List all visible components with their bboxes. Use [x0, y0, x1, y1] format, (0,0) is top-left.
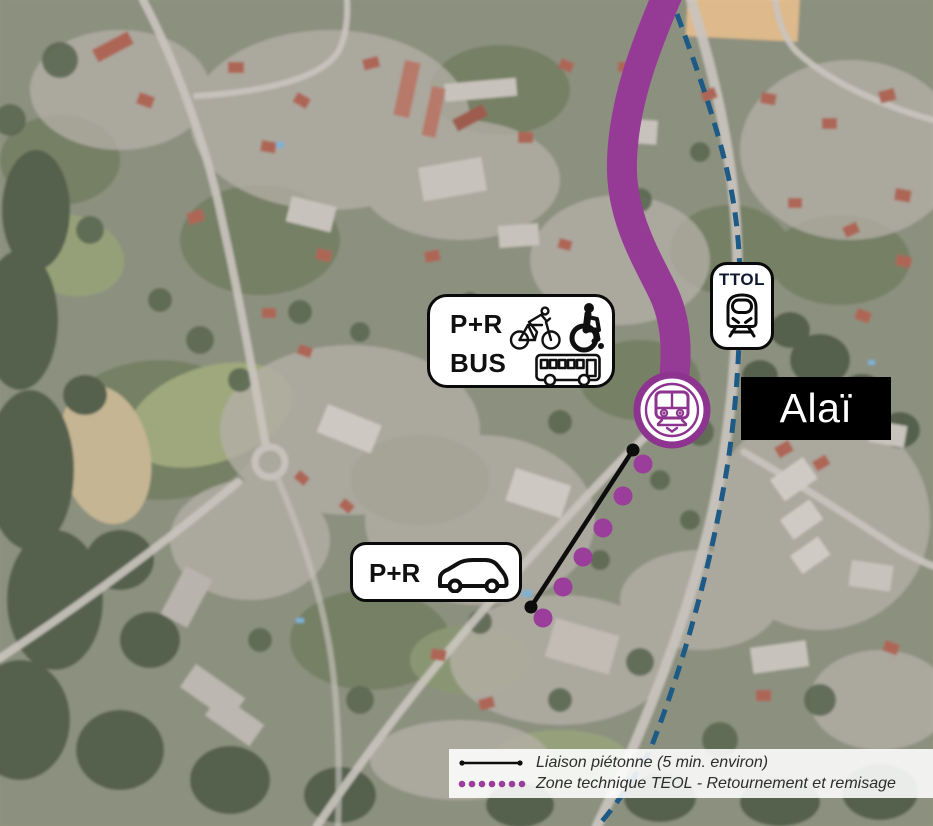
pr-bus-badge: P+R BUS [427, 294, 615, 388]
legend-item-pedestrian: Liaison piétonne (5 min. environ) [457, 753, 925, 773]
alai-station-marker [637, 375, 707, 445]
alai-station-label: Alaï [741, 377, 891, 440]
technical-zone-dots-symbol [457, 778, 527, 790]
bicycle-icon [508, 305, 564, 351]
wheelchair-icon [563, 301, 610, 353]
legend: Liaison piétonne (5 min. environ) Zone t… [449, 749, 933, 798]
pr-car-badge: P+R [350, 542, 522, 602]
legend-pedestrian-label: Liaison piétonne (5 min. environ) [536, 754, 768, 772]
car-icon [433, 553, 513, 593]
pedestrian-line-symbol [457, 757, 527, 769]
ttol-badge: TTOL [710, 262, 774, 350]
bus-icon [534, 352, 604, 388]
pr-label: P+R [450, 309, 503, 340]
pr-car-label: P+R [369, 558, 420, 589]
ttol-label: TTOL [719, 270, 765, 290]
legend-technical-zone-label: Zone technique TEOL - Retournement et re… [536, 775, 896, 793]
bus-label: BUS [450, 348, 506, 379]
legend-item-technical-zone: Zone technique TEOL - Retournement et re… [457, 774, 925, 794]
train-front-icon [719, 290, 765, 338]
